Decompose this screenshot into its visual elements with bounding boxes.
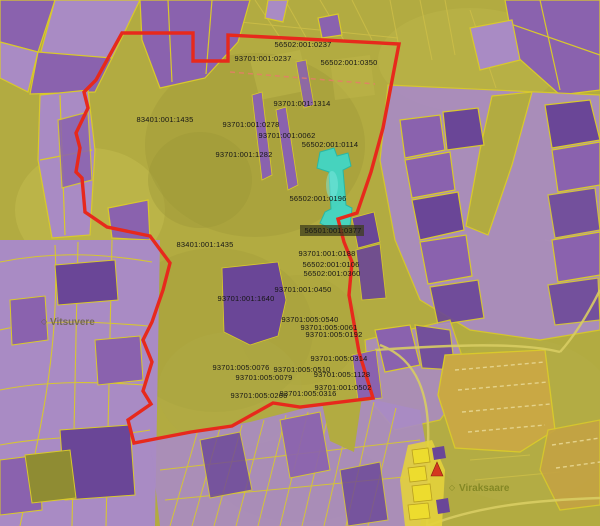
place-marker-icon: ◇ <box>41 317 48 326</box>
parcel-label: 93701:005:0314 <box>310 354 367 363</box>
parcel-label: 56502:001:0360 <box>303 269 360 278</box>
parcel-label: 93701:001:0062 <box>258 131 315 140</box>
parcel-label: 56502:001:0114 <box>302 140 358 149</box>
parcel-label: 93701:005:1128 <box>314 370 370 379</box>
parcel-label: 93701:001:0188 <box>298 249 355 258</box>
parcel-label: 93701:001:0450 <box>274 285 331 294</box>
parcel-label: 56502:001:0237 <box>274 40 331 49</box>
place-marker-icon: ◇ <box>449 483 456 492</box>
parcel-label: 83401:001:1435 <box>136 115 193 124</box>
parcel-label: 93701:001:1282 <box>215 150 272 159</box>
parcel-label: 93701:005:0192 <box>305 330 362 339</box>
parcel-label: 93701:001:1314 <box>273 99 330 108</box>
parcel-label: 56502:001:0106 <box>302 260 359 269</box>
parcel-label: 56502:001:0350 <box>320 58 377 67</box>
parcel-label: 56501:001:0377 <box>304 226 361 235</box>
village-cluster <box>400 440 450 526</box>
parcel-label: 93701:001:1640 <box>217 294 274 303</box>
place-label: Viraksaare <box>459 483 510 494</box>
parcel-label: 56502:001:0196 <box>289 194 346 203</box>
map-viewport[interactable]: 56502:001:023793701:001:023756502:001:03… <box>0 0 600 526</box>
parcel-label: 93701:005:0079 <box>235 373 292 382</box>
parcel-label: 93701:005:0076 <box>212 363 269 372</box>
parcel-label: 93701:001:0237 <box>234 54 291 63</box>
urban-zone-west <box>0 240 160 526</box>
parcel-label: 93701:005:0316 <box>279 389 336 398</box>
place-label: Vitsuvere <box>50 317 95 328</box>
parcel-label: 83401:001:1435 <box>176 240 233 249</box>
cadastral-map[interactable]: 56502:001:023793701:001:023756502:001:03… <box>0 0 600 526</box>
parcel-label: 93701:001:0278 <box>222 120 279 129</box>
